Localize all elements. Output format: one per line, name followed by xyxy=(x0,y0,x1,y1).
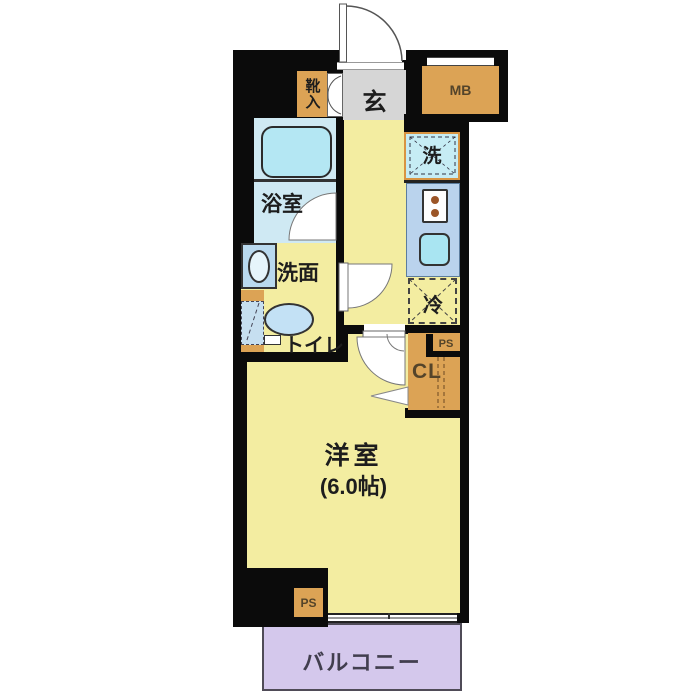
wall xyxy=(404,114,464,132)
stove-burner xyxy=(431,196,439,204)
washroom-label: 洗面 xyxy=(277,257,319,287)
refrigerator-label: 冷 xyxy=(406,289,460,318)
laundry-label: 洗 xyxy=(404,141,460,168)
main-room-label: 洋室 xyxy=(247,436,460,472)
corridor-floor xyxy=(344,120,406,334)
stove-burner xyxy=(431,209,439,217)
main-room-floor xyxy=(348,334,408,362)
toilet-label: トイレ xyxy=(284,329,344,358)
pipe-space-upper-label: PS xyxy=(439,338,454,350)
entrance-door-arc xyxy=(346,6,402,61)
toilet-side-door xyxy=(241,301,264,345)
entrance-threshold xyxy=(337,62,404,70)
toilet-tank xyxy=(264,335,281,345)
closet-label: CL xyxy=(412,360,442,384)
window-latch xyxy=(388,613,390,619)
stove xyxy=(422,189,448,223)
shoe-cabinet: 靴入 xyxy=(297,71,327,117)
shoe-cabinet-label: 靴入 xyxy=(302,78,323,110)
pipe-space-upper: PS xyxy=(433,336,459,351)
pipe-space-lower-label: PS xyxy=(300,596,316,610)
toilet-side-cabinet xyxy=(241,290,264,301)
meter-box-label: MB xyxy=(450,82,472,98)
floor-plan: MB 靴入 PS PS xyxy=(0,0,700,700)
balcony-window xyxy=(328,613,457,623)
entrance-label: 玄 xyxy=(343,82,406,117)
main-room-size: (6.0帖) xyxy=(247,469,460,501)
shoe-cabinet-doors xyxy=(327,73,343,117)
bathroom-label: 浴室 xyxy=(241,188,323,218)
toilet-side-cabinet xyxy=(241,345,264,352)
bathroom-divider xyxy=(254,179,336,182)
wall xyxy=(457,613,469,623)
pipe-space-lower: PS xyxy=(294,588,323,617)
vanity-basin xyxy=(248,250,270,283)
meter-box: MB xyxy=(422,66,499,114)
wall xyxy=(247,114,254,245)
wall xyxy=(460,114,469,622)
mb-window xyxy=(427,57,494,66)
kitchen-sink xyxy=(419,233,450,266)
balcony-label: バルコニー xyxy=(262,645,462,677)
bathtub xyxy=(261,126,332,178)
wall xyxy=(426,351,462,357)
